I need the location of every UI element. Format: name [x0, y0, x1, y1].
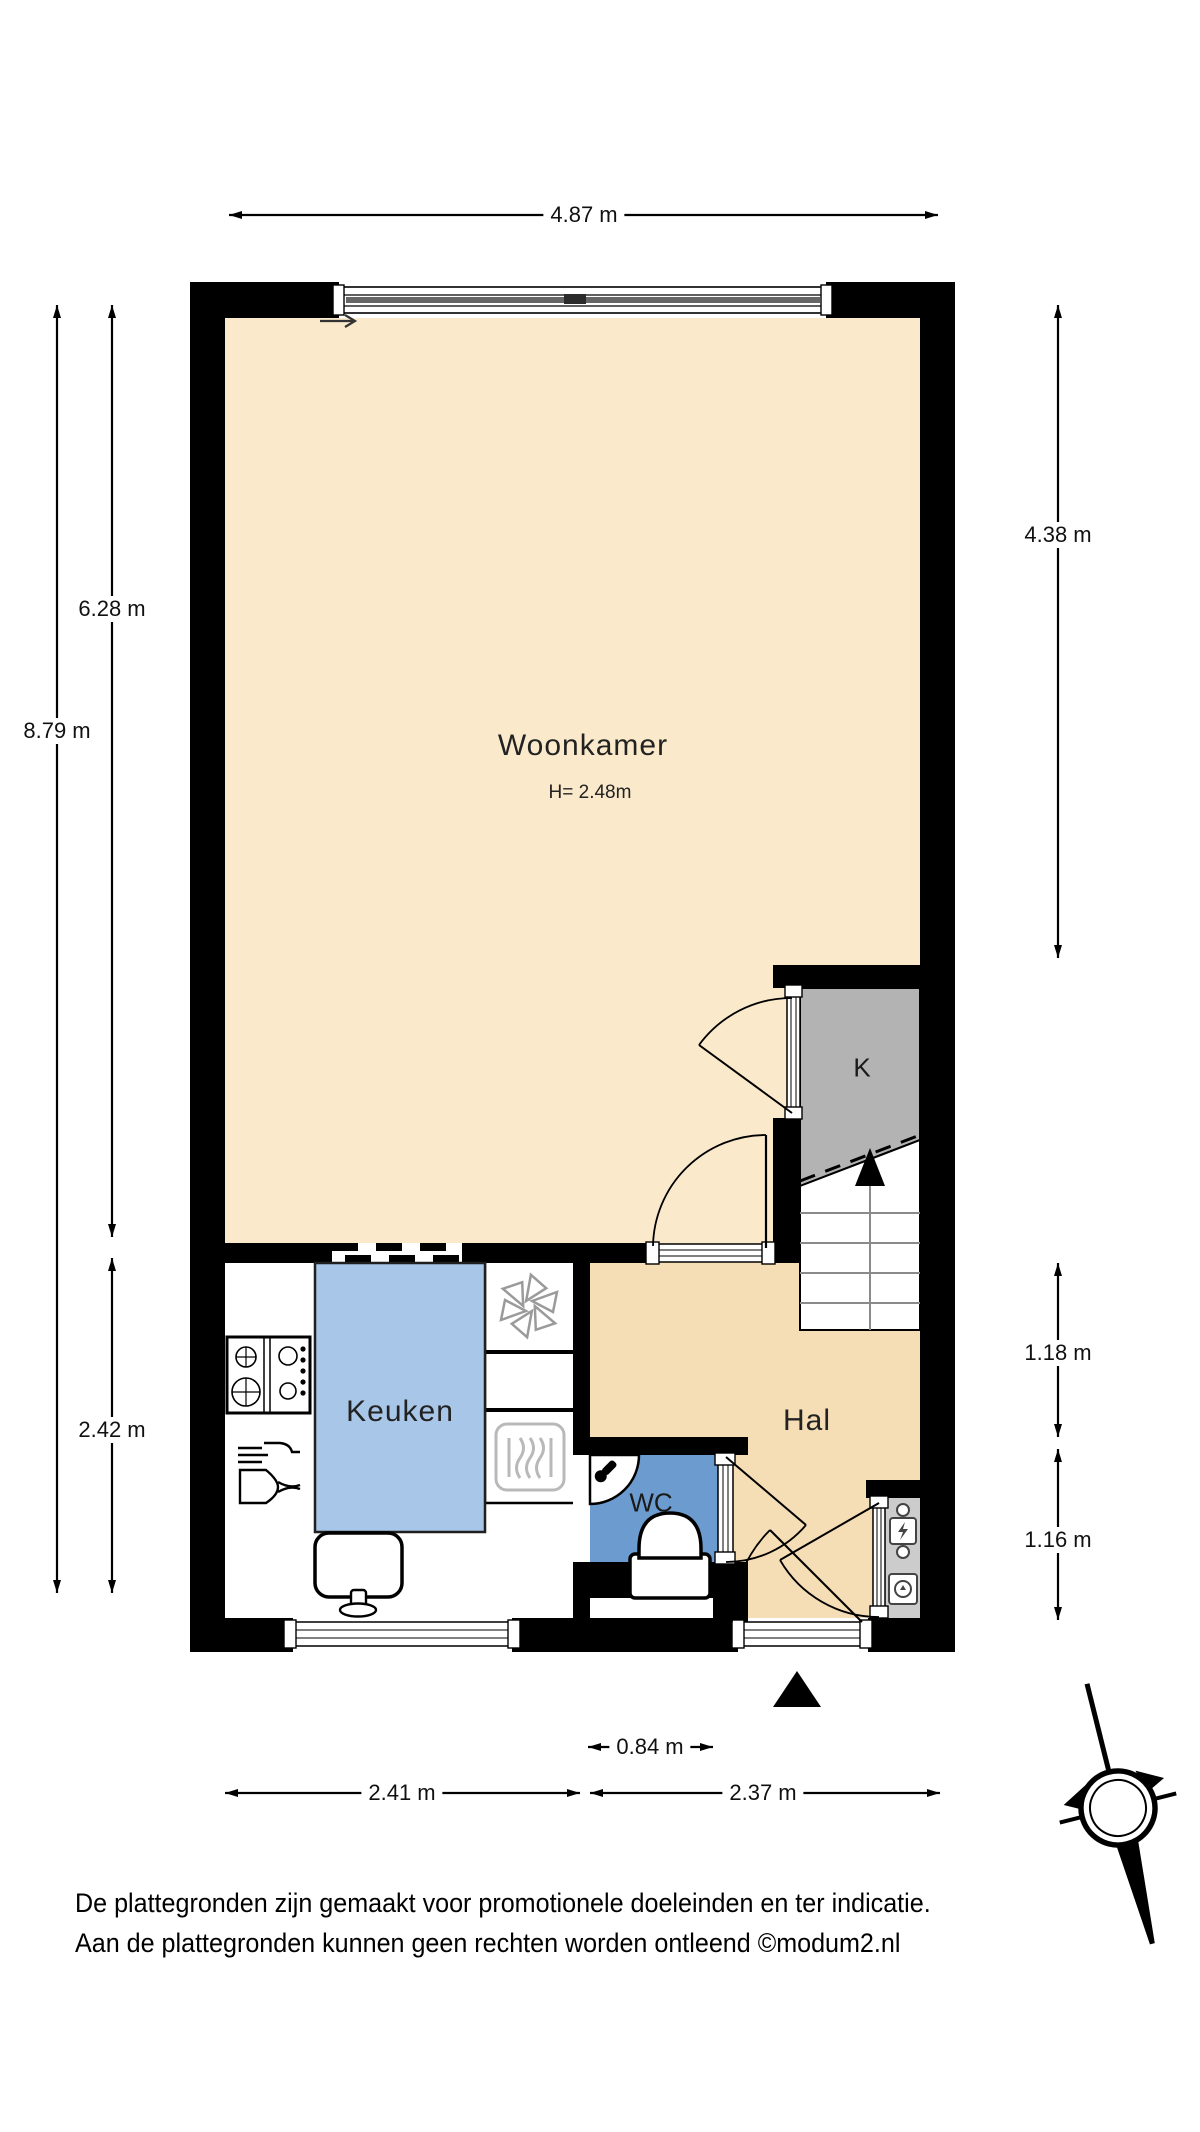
dim-top-label: 4.87 m	[543, 202, 624, 228]
closet-label: K	[853, 1053, 870, 1084]
dim-bottom-keuken-label: 2.41 m	[361, 1780, 442, 1806]
keuken-label: Keuken	[346, 1395, 454, 1429]
hal-label: Hal	[783, 1404, 831, 1438]
keuken-open-passage	[332, 1243, 462, 1263]
woonkamer-height-label: H= 2.48m	[549, 782, 632, 804]
woonkamer-label: Woonkamer	[498, 729, 668, 763]
disclaimer-line-1: De plattegronden zijn gemaakt voor promo…	[75, 1888, 931, 1919]
gas-meter-icon	[889, 1574, 917, 1604]
wc-label: WC	[629, 1488, 672, 1519]
wall-keuken-hal	[573, 1263, 590, 1455]
wall-bottom-right	[868, 1618, 955, 1652]
dim-left-woonkamer-label: 6.28 m	[71, 596, 152, 622]
wall-left	[190, 282, 225, 1652]
wall-partition-left	[225, 1243, 332, 1263]
dim-right-hal-lower-label: 1.16 m	[1017, 1527, 1098, 1553]
dim-left-total-label: 8.79 m	[16, 718, 97, 744]
kitchen-window	[284, 1620, 520, 1648]
sliding-panel-left	[346, 297, 584, 303]
stove-icon	[227, 1337, 310, 1413]
floorplan-drawing	[0, 0, 1200, 2132]
floorplan-page: Woonkamer H= 2.48m Keuken Hal WC K 4.87 …	[0, 0, 1200, 2132]
wall-stairs-left	[773, 1118, 800, 1263]
dim-left-keuken-label: 2.42 m	[71, 1417, 152, 1443]
entrance-arrow-icon	[773, 1671, 821, 1707]
wc-wall-niche	[590, 1598, 713, 1618]
sliding-panel-right	[580, 297, 820, 303]
dim-right-woonkamer-label: 4.38 m	[1017, 522, 1098, 548]
dim-bottom-hal-label: 2.37 m	[722, 1780, 803, 1806]
compass-north-icon	[1029, 1669, 1200, 1958]
dim-right-hal-upper-label: 1.18 m	[1017, 1340, 1098, 1366]
wall-bottom-left	[190, 1618, 293, 1652]
disclaimer-line-2: Aan de plattegronden kunnen geen rechten…	[75, 1928, 900, 1959]
wall-partition-middle	[462, 1243, 650, 1263]
wall-right	[920, 282, 955, 1652]
dim-bottom-wc-label: 0.84 m	[609, 1734, 690, 1760]
sliding-door-handle	[564, 294, 586, 304]
toilet-icon	[630, 1513, 710, 1598]
wall-bottom-middle	[512, 1618, 738, 1652]
